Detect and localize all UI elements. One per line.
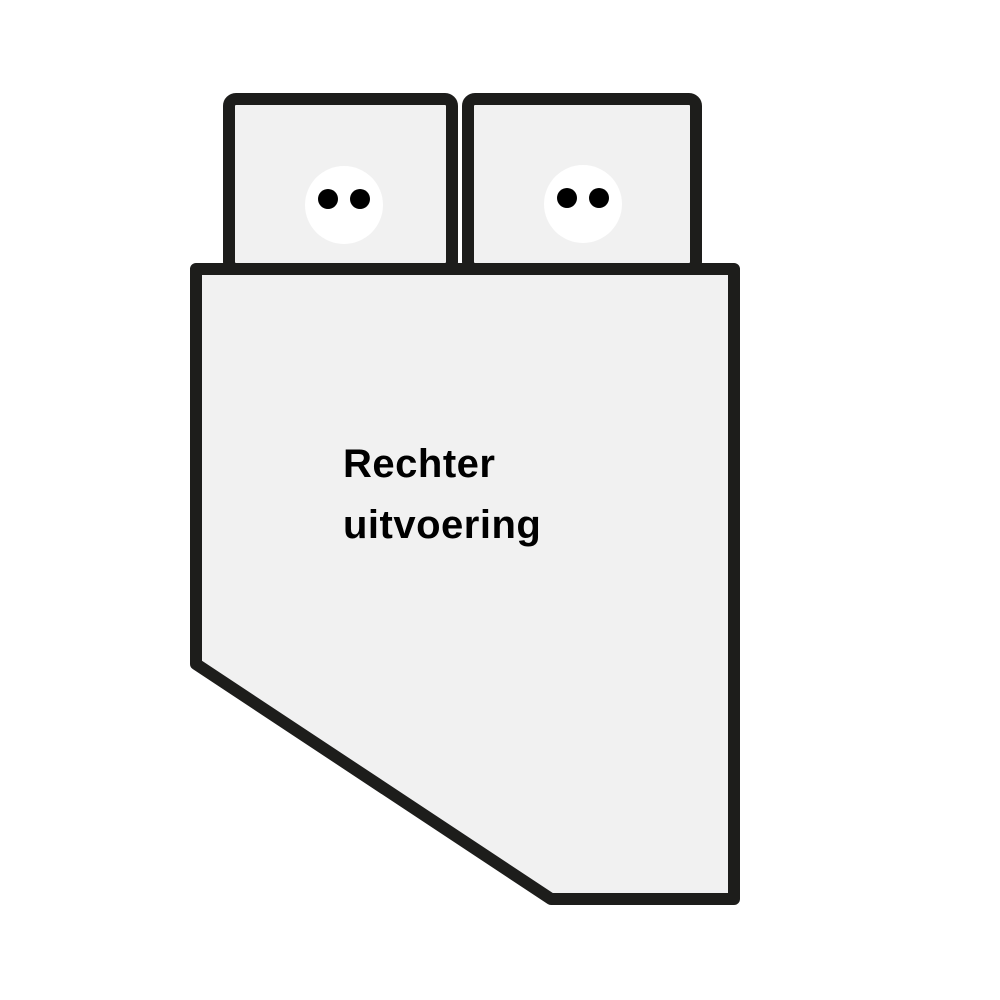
left-pillow-button-hole-1: [318, 189, 338, 209]
right-pillow-button-hole-1: [557, 188, 577, 208]
mattress-outline: [196, 269, 734, 899]
right-pillow: [468, 99, 696, 269]
bed-diagram: Rechter uitvoering: [0, 0, 1000, 1000]
bed-label-line-2: uitvoering: [343, 495, 541, 556]
right-pillow-button-hole-2: [589, 188, 609, 208]
bed-label: Rechter uitvoering: [343, 434, 541, 556]
left-pillow-button-hole-2: [350, 189, 370, 209]
left-pillow: [229, 99, 452, 269]
right-pillow-button: [544, 165, 622, 243]
left-pillow-button: [305, 166, 383, 244]
bed-label-line-1: Rechter: [343, 434, 541, 495]
